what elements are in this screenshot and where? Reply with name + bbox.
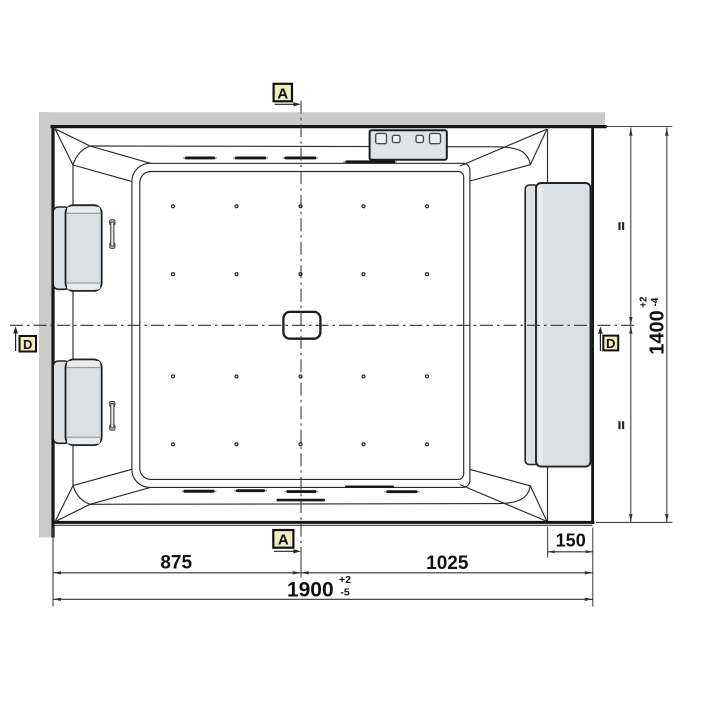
svg-text:+2: +2 [339,574,351,586]
svg-text:+2: +2 [639,296,650,308]
svg-text:-5: -5 [340,587,349,599]
svg-text:D: D [606,336,615,351]
svg-text:1025: 1025 [426,553,469,574]
svg-text:1900: 1900 [287,578,334,601]
svg-text:A: A [277,85,288,102]
svg-text:1400: 1400 [647,310,669,355]
svg-text:875: 875 [160,553,192,574]
svg-text:A: A [278,532,289,549]
svg-text:-4: -4 [650,297,661,306]
svg-text:D: D [23,337,32,352]
svg-text:150: 150 [556,531,586,551]
